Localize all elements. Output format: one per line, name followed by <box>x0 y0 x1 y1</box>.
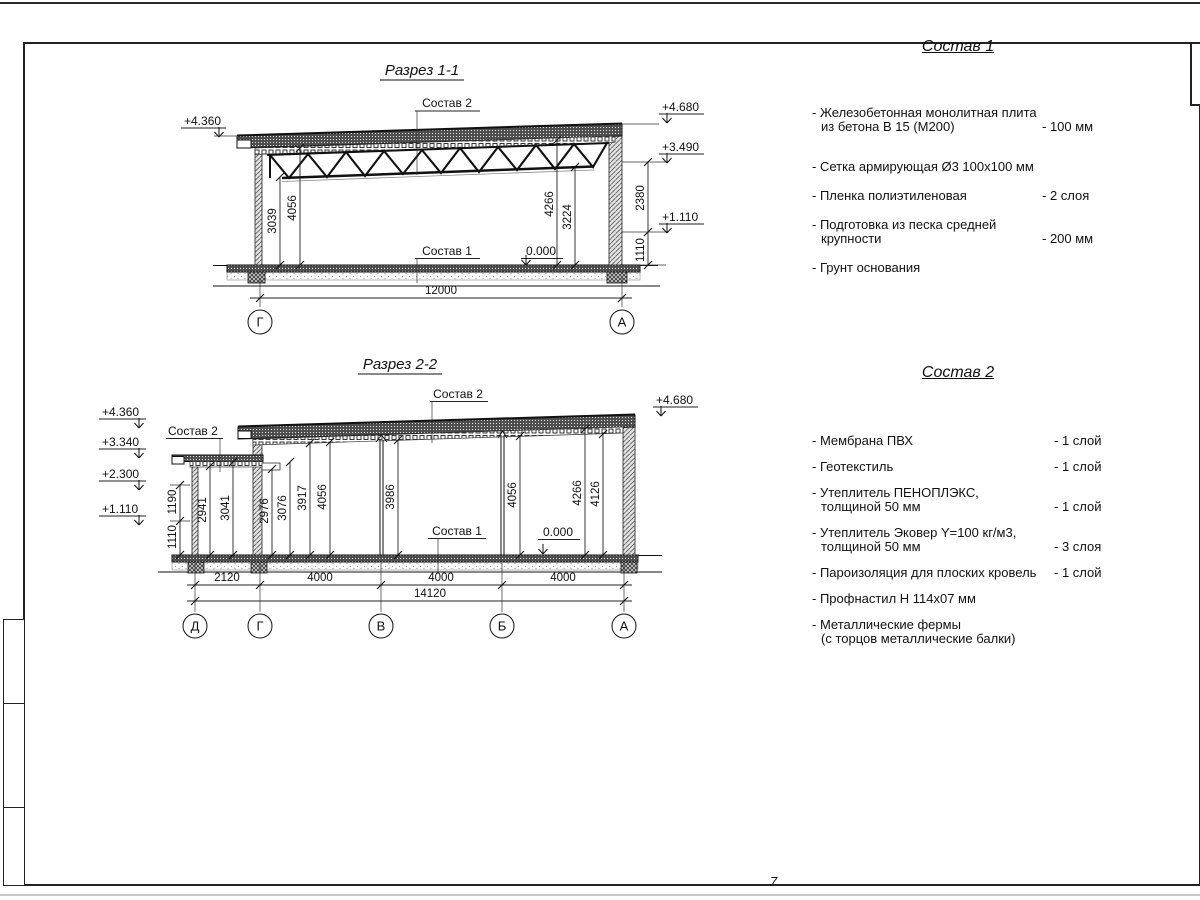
middle-wall <box>253 436 262 555</box>
right-wall <box>609 128 622 265</box>
elevation-label: +3.490 <box>662 140 699 154</box>
dim-label: 2976 <box>259 498 271 524</box>
axis-label: Д <box>191 619 200 634</box>
section-2-2-drawing: Разрез 2-2 1190 <box>90 350 720 650</box>
elevation-label: +3.340 <box>102 435 139 449</box>
item-text-line2: (с торцов металлические балки) <box>812 632 1132 646</box>
bottom-dimension: 12000 <box>250 278 632 307</box>
list-item: - Геотекстиль - 1 слой <box>812 460 1132 474</box>
main-roof <box>238 414 635 445</box>
elevation-label: +2.300 <box>102 467 139 481</box>
list-item: - Грунт основания <box>812 261 1132 275</box>
list-item: - Мембрана ПВХ - 1 слой <box>812 434 1132 448</box>
dim-label: 4056 <box>287 195 299 221</box>
elevation-label: +4.680 <box>656 393 693 407</box>
roof-edge-plate <box>238 431 251 439</box>
sheet-bottom-edge <box>0 894 1200 896</box>
elevation-label: +4.360 <box>102 405 139 419</box>
axis-label: Г <box>256 619 263 634</box>
section-title-group: Разрез 1-1 <box>380 62 464 80</box>
leader-labels: Состав 2 Состав 1 0.000 <box>415 96 563 283</box>
elevation-label: +1.110 <box>102 502 138 516</box>
item-value: - 1 слой <box>1054 500 1102 514</box>
axis-label: Б <box>498 619 507 634</box>
list-item: - Пленка полиэтиленовая - 2 слоя <box>812 189 1132 203</box>
ground-and-floor <box>213 265 660 286</box>
list-item: - Утеплитель Эковер Y=100 кг/м3, толщино… <box>812 526 1132 554</box>
dim-label: 3041 <box>220 495 232 521</box>
dim-label: 2120 <box>214 572 240 584</box>
item-text: - Металлические фермы <box>812 618 1132 632</box>
sheet-top-edge <box>0 2 1200 4</box>
ground-and-floor <box>158 555 662 573</box>
side-stamp-cell <box>3 619 25 705</box>
dim-label: 4000 <box>307 572 333 584</box>
leader-label: Состав 1 <box>432 524 482 538</box>
side-stamp-cell <box>3 807 25 886</box>
list-item: - Железобетонная монолитная плита из бет… <box>812 106 1132 134</box>
composition-1-list: - Железобетонная монолитная плита из бет… <box>812 106 1132 290</box>
dim-label: 2941 <box>197 497 209 523</box>
zero-level-label: 0.000 <box>543 525 573 539</box>
page-number: 7 <box>770 874 777 889</box>
left-wall-dimensions: 1190 1110 <box>167 481 190 559</box>
list-item: - Пароизоляция для плоских кровель - 1 с… <box>812 566 1132 580</box>
leader-label: Состав 2 <box>422 96 472 110</box>
elevation-label: +1.110 <box>662 210 698 224</box>
dim-label: 1110 <box>167 525 179 549</box>
dim-label: 4126 <box>590 481 602 507</box>
footing <box>607 272 627 283</box>
roof-edge-plate <box>172 457 184 465</box>
floor-slab <box>227 265 640 272</box>
list-item: - Подготовка из песка средней крупности … <box>812 218 1132 246</box>
dim-label: 1110 <box>635 238 647 262</box>
right-wall <box>623 416 635 555</box>
item-value: - 200 мм <box>1042 232 1093 246</box>
item-value: - 1 слой <box>1054 434 1102 448</box>
dim-label: 4266 <box>572 480 584 506</box>
footing <box>621 562 637 573</box>
dim-label: 4266 <box>544 191 556 217</box>
axis-label: А <box>618 315 627 330</box>
footing <box>251 562 267 573</box>
item-text: - Железобетонная монолитная плита <box>812 106 1132 120</box>
dim-label: 3224 <box>562 204 574 230</box>
dim-label: 3986 <box>385 484 397 510</box>
item-text: - Утеплитель ПЕНОПЛЭКС, <box>812 486 1132 500</box>
side-stamp-cell <box>3 703 25 809</box>
item-value: - 2 слоя <box>1042 189 1089 203</box>
leader-label: Состав 2 <box>168 424 218 438</box>
frame-corner-box <box>1190 42 1200 106</box>
zero-level-label: 0.000 <box>526 244 556 258</box>
footing <box>188 562 204 573</box>
annex-deck <box>190 462 263 468</box>
dim-label: 4000 <box>428 572 454 584</box>
item-text: - Утеплитель Эковер Y=100 кг/м3, <box>812 526 1132 540</box>
item-value: - 3 слоя <box>1054 540 1101 554</box>
dim-label: 14120 <box>414 588 446 600</box>
dim-label: 3917 <box>297 485 309 511</box>
dim-label: 4056 <box>507 482 519 508</box>
sand-layer <box>227 272 640 280</box>
grid-bubbles: Д Г В Б А <box>183 614 636 638</box>
section-title: Разрез 1-1 <box>385 62 459 79</box>
list-item: - Утеплитель ПЕНОПЛЭКС, толщиной 50 мм -… <box>812 486 1132 514</box>
dim-label: 1190 <box>167 490 179 515</box>
footing <box>248 272 265 283</box>
sand-layer <box>172 562 638 570</box>
axis-label: А <box>620 619 629 634</box>
list-item: - Сетка армирующая Ø3 100х100 мм <box>812 160 1132 174</box>
composition-1-heading: Состав 1 <box>870 38 1046 56</box>
section-title-group: Разрез 2-2 <box>358 356 442 374</box>
item-value: - 1 слой <box>1054 460 1102 474</box>
list-item: - Профнастил Н 114х07 мм <box>812 592 1132 606</box>
leader-labels: Состав 2 Состав 2 Состав 1 0.000 <box>166 387 580 573</box>
elevation-label: +4.360 <box>184 114 221 128</box>
dim-label: 4000 <box>550 572 576 584</box>
elevation-label: +4.680 <box>662 100 699 114</box>
dim-label: 3039 <box>267 208 279 234</box>
section-title: Разрез 2-2 <box>363 356 438 373</box>
dim-label: 12000 <box>425 285 457 297</box>
item-text: - Грунт основания <box>812 261 1132 275</box>
item-value: - 100 мм <box>1042 120 1093 134</box>
annex-roof <box>172 455 280 470</box>
list-item: - Металлические фермы (с торцов металлич… <box>812 618 1132 646</box>
left-wall <box>255 145 262 265</box>
dim-label: 2380 <box>635 185 647 211</box>
dim-label: 4056 <box>317 484 329 510</box>
grid-bubbles: Г А <box>248 310 634 334</box>
composition-2-heading: Состав 2 <box>870 364 1046 382</box>
leader-label: Состав 2 <box>433 387 483 401</box>
dim-label: 3076 <box>277 495 289 521</box>
item-text: - Подготовка из песка средней <box>812 218 1132 232</box>
beam-stub <box>262 463 280 470</box>
leader-label: Состав 1 <box>422 244 472 258</box>
item-text: - Профнастил Н 114х07 мм <box>812 592 1132 606</box>
floor-slab <box>172 555 638 562</box>
annex-roof-layers <box>172 455 263 462</box>
roof-edge-plate <box>237 140 251 148</box>
axis-label: Г <box>256 315 263 330</box>
section-1-1-drawing: Разрез 1-1 3039 4056 4266 3224 <box>170 45 720 345</box>
right-dimension-chain: 2380 1110 <box>622 158 666 269</box>
composition-2-list: - Мембрана ПВХ - 1 слой - Геотекстиль - … <box>812 434 1132 658</box>
item-text: - Сетка армирующая Ø3 100х100 мм <box>812 160 1132 174</box>
item-value: - 1 слой <box>1054 566 1102 580</box>
axis-label: В <box>377 619 386 634</box>
